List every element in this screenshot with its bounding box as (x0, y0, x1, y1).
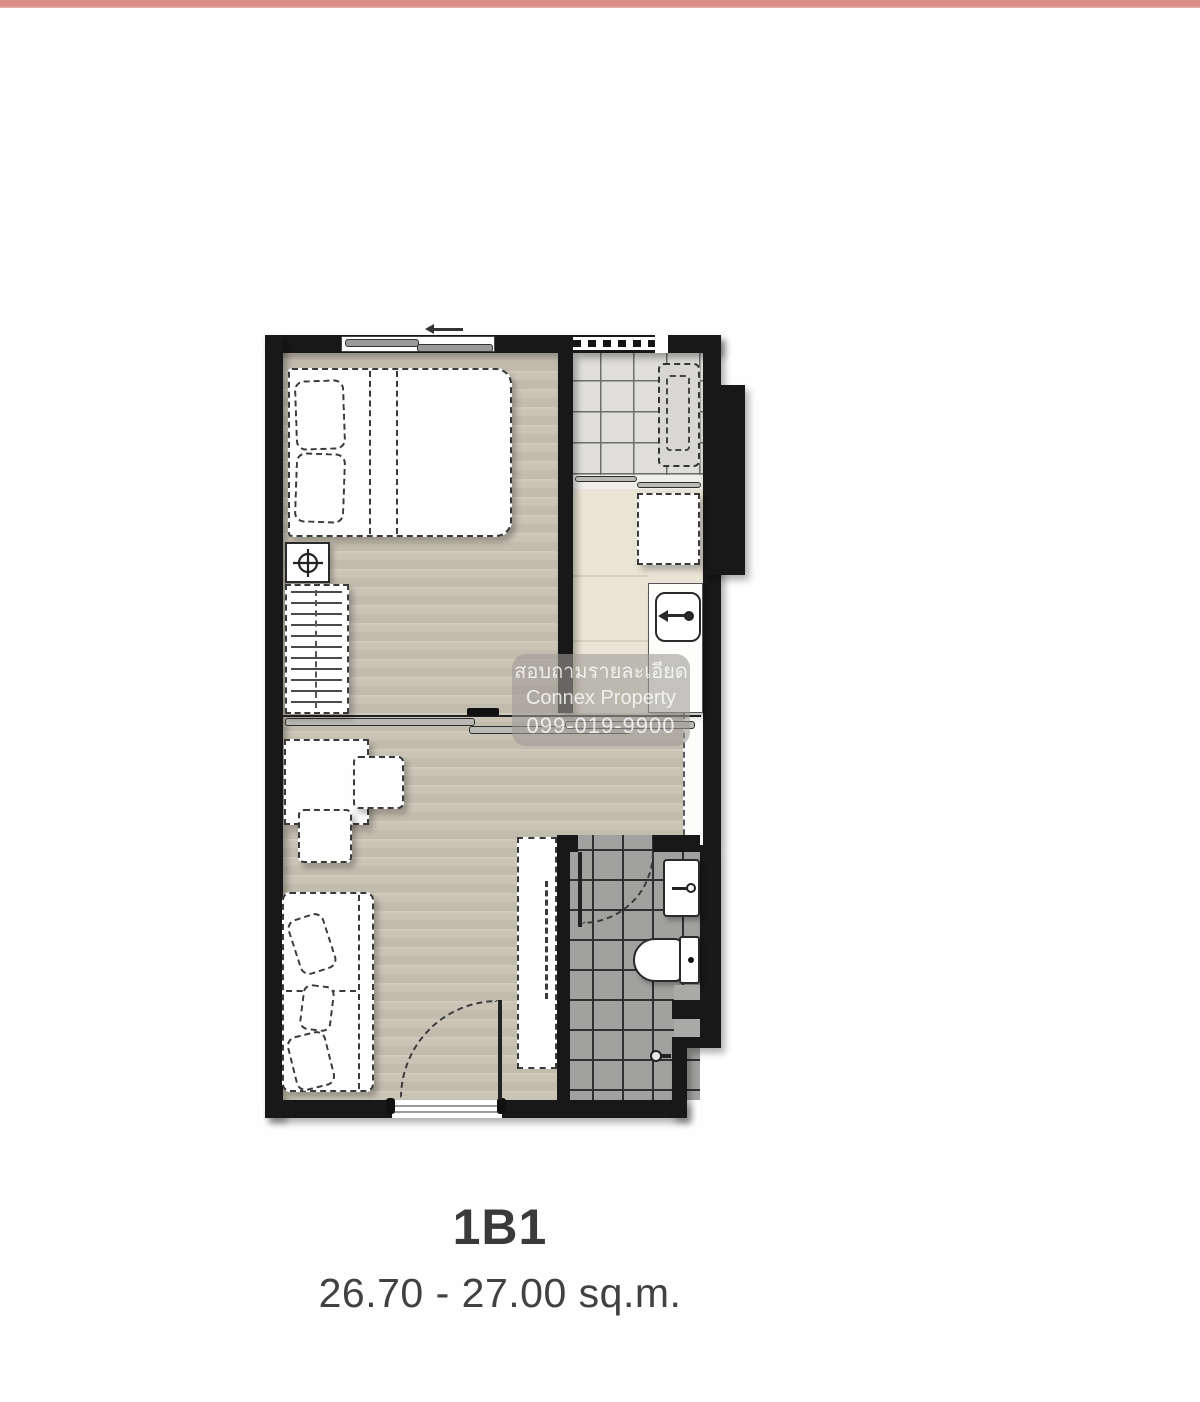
closet-handle (545, 881, 548, 999)
pillow (294, 452, 346, 524)
watermark-line-brand: Connex Property (526, 687, 676, 711)
kitchen-floor-line (573, 640, 649, 642)
balcony-vent-louver (573, 337, 655, 350)
balcony-sliding-door-panel (575, 476, 637, 482)
wall-bathroom-left (557, 835, 570, 1100)
window-pane (345, 339, 419, 347)
window-pane (417, 344, 493, 352)
kitchen-floor-line (573, 575, 649, 577)
unit-name: 1B1 (260, 1198, 740, 1256)
sofa-seat-line (358, 895, 360, 1089)
entrance-door-leaf (498, 1000, 502, 1100)
sliding-partition-panel (285, 718, 475, 726)
watermark: สอบถามรายละเอียด Connex Property 099-019… (512, 654, 690, 746)
unit-area: 26.70 - 27.00 sq.m. (260, 1270, 740, 1317)
shower-head-icon (650, 1049, 672, 1064)
floor-plan-page: สอบถามรายละเอียด Connex Property 099-019… (0, 0, 1200, 1402)
air-conditioner-unit (658, 363, 700, 467)
lamp-crosshair-icon (291, 547, 325, 579)
bathroom-niche-divider (672, 1000, 700, 1019)
bathroom-door-jamb-left (557, 835, 578, 852)
closet (517, 837, 557, 1069)
wall-right-lower (672, 1048, 687, 1118)
wall-left (265, 335, 283, 1118)
caption: 1B1 26.70 - 27.00 sq.m. (260, 1198, 740, 1317)
door-stop (497, 1098, 506, 1114)
wall-right-bathroom (700, 845, 721, 1037)
bed-sheet-line (396, 371, 398, 534)
stool (298, 809, 352, 863)
washing-machine (637, 493, 700, 565)
watermark-line-thai: สอบถามรายละเอียด (514, 661, 688, 685)
kitchen-faucet-icon (658, 609, 694, 623)
balcony-sliding-door-panel (637, 482, 701, 488)
toilet-bowl (633, 938, 683, 982)
bathroom-shelf-niche (674, 1019, 700, 1037)
wall-gap (655, 335, 668, 353)
bathroom-faucet-icon (670, 882, 698, 894)
wall-step (672, 1037, 721, 1048)
bathroom-door-jamb-right (653, 835, 700, 852)
door-stop (386, 1098, 395, 1114)
pillow (294, 379, 346, 451)
watermark-line-phone: 099-019-9900 (526, 713, 675, 739)
window-slide-arrow-icon (425, 324, 465, 334)
chair (353, 756, 404, 809)
wardrobe-rail (315, 590, 317, 708)
sofa-pillow (298, 983, 335, 1033)
top-accent-bar (0, 0, 1200, 8)
toilet-flush-button (688, 957, 694, 963)
partition-handle (467, 708, 499, 716)
structural-column (703, 385, 745, 575)
bathroom-shelf-niche (674, 985, 700, 1000)
bed-sheet-line (369, 371, 371, 534)
wardrobe (285, 584, 349, 714)
entrance-opening (392, 1100, 502, 1118)
